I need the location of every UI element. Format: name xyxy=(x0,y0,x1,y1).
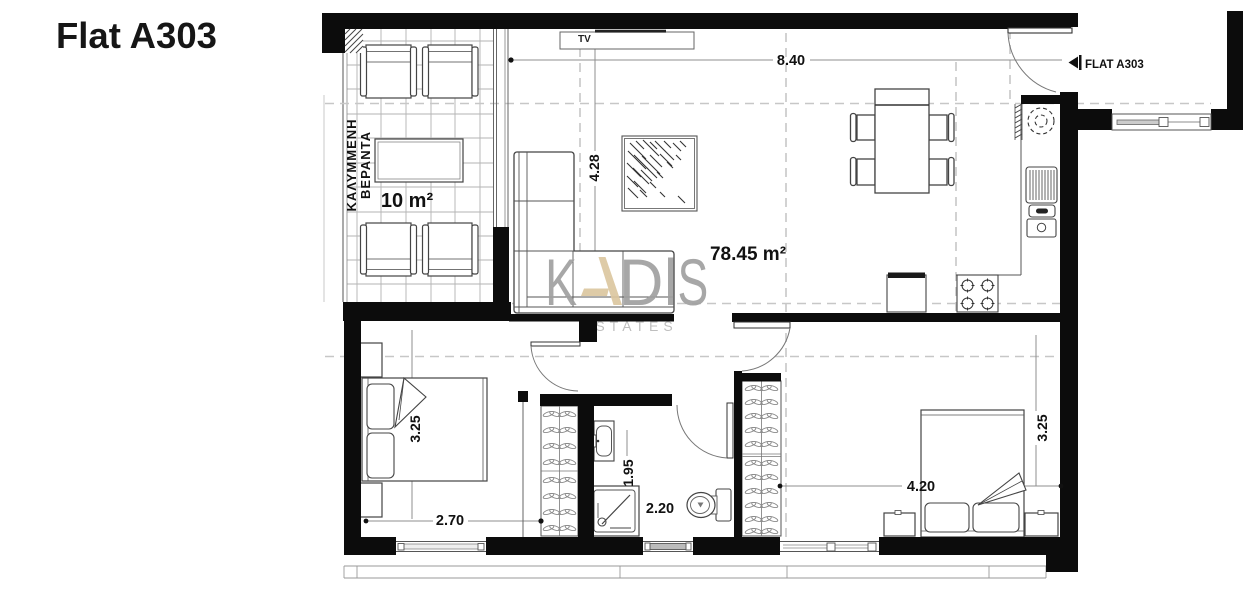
svg-text:2.20: 2.20 xyxy=(646,501,674,517)
svg-text:8.40: 8.40 xyxy=(777,53,805,69)
svg-text:78.45 m²: 78.45 m² xyxy=(710,244,786,265)
svg-text:2.70: 2.70 xyxy=(436,513,464,529)
svg-text:ΚΑΛΥΜΜΕΝΗ: ΚΑΛΥΜΜΕΝΗ xyxy=(344,118,359,211)
svg-text:10 m²: 10 m² xyxy=(381,190,434,212)
svg-text:FLAT A303: FLAT A303 xyxy=(1085,59,1144,71)
svg-text:4.28: 4.28 xyxy=(586,154,602,181)
svg-text:S: S xyxy=(678,246,709,320)
svg-text:D: D xyxy=(619,245,663,320)
svg-text:Flat A303: Flat A303 xyxy=(56,15,217,56)
svg-text:4.20: 4.20 xyxy=(907,479,935,495)
svg-text:3.25: 3.25 xyxy=(407,415,423,442)
svg-text:1.95: 1.95 xyxy=(620,459,636,486)
svg-text:K: K xyxy=(545,247,577,320)
svg-text:ΒΕΡΑΝΤΑ: ΒΕΡΑΝΤΑ xyxy=(358,131,373,199)
svg-text:3.25: 3.25 xyxy=(1034,414,1050,441)
svg-text:TV: TV xyxy=(578,34,591,45)
